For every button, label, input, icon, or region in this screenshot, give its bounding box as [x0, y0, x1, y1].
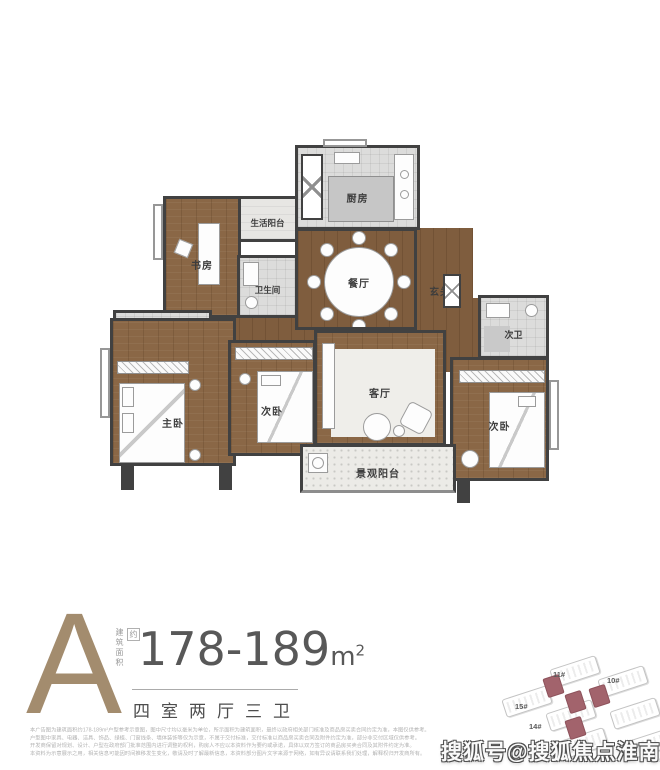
disclaimer-line: 本广告图为建筑面积约178-189m²户型参考示意图，图中尺寸均以毫米为单位，所… [30, 727, 630, 733]
window [153, 204, 163, 260]
area-number: 178-189 [138, 622, 330, 676]
pillow [261, 375, 281, 386]
window [323, 139, 367, 147]
room-bathroom: 卫生间 [237, 255, 298, 318]
window [100, 348, 110, 418]
building-label: 11# [553, 670, 565, 679]
room-dining: 餐厅 [295, 228, 417, 330]
armchair [363, 413, 391, 441]
pillow [122, 387, 134, 407]
room-label: 次卧 [231, 403, 313, 418]
wardrobe [235, 347, 313, 360]
side-table [393, 425, 405, 437]
toilet [245, 296, 258, 309]
watermark: 搜狐号@搜狐焦点淮南店 [441, 736, 660, 766]
wall-stub [121, 466, 134, 490]
room-view-balcony: 景观阳台 [300, 444, 456, 493]
chair [461, 450, 479, 468]
dining-chair [320, 243, 334, 257]
nightstand [239, 373, 251, 385]
area-label: 建筑面积 约 [114, 628, 140, 674]
room-label: 景观阳台 [303, 465, 453, 480]
room-label: 卫生间 [240, 284, 295, 296]
dining-chair [384, 243, 398, 257]
nightstand [189, 449, 201, 461]
room-label: 餐厅 [324, 275, 394, 290]
room-living: 客厅 [314, 330, 446, 446]
kitchen-sink [334, 152, 360, 164]
kitchen-stove [394, 154, 414, 220]
dining-chair [320, 307, 334, 321]
room-master-bedroom: 主卧 [110, 318, 236, 466]
window [549, 380, 559, 450]
nightstand [189, 379, 201, 391]
stove-burner [400, 170, 409, 179]
wardrobe [117, 361, 189, 374]
dining-chair [307, 275, 321, 289]
room-label: 次卧 [453, 418, 546, 433]
room-kitchen: 厨房 [295, 145, 420, 230]
room-label: 书房 [166, 257, 238, 272]
dining-chair [384, 307, 398, 321]
room-label: 厨房 [298, 190, 417, 205]
room-label: 次卫 [481, 328, 546, 341]
shaft-hatch [301, 154, 323, 220]
wardrobe [459, 370, 545, 383]
study-desk [198, 223, 220, 285]
page-canvas: 厨房 生活阳台 书房 卫生间 餐厅 [0, 0, 660, 770]
room-study: 书房 [163, 196, 241, 318]
dining-chair [352, 231, 366, 245]
disclaimer-text: 本广告图为建筑面积约178-189m²户型参考示意图，图中尺寸均以毫米为单位，所… [30, 727, 402, 752]
bath-sink [486, 303, 510, 318]
study-chair [174, 239, 194, 259]
room-label: 生活阳台 [240, 217, 295, 229]
wall-stub [219, 466, 232, 490]
bath-sink [243, 262, 259, 286]
shaft-hatch [443, 274, 461, 308]
area-label-text: 建筑面积 [114, 628, 125, 674]
room-label: 玄关 [407, 284, 473, 298]
dining-chair [352, 319, 366, 330]
room-bedroom-2: 次卧 [228, 340, 316, 456]
room-label: 主卧 [143, 415, 203, 430]
room-foyer: 玄关 [407, 258, 473, 318]
pillow [122, 413, 134, 433]
toilet [525, 304, 538, 317]
info-divider [132, 689, 298, 690]
room-bath-2: 次卫 [478, 295, 549, 359]
building-block [609, 697, 660, 730]
pillow [518, 396, 536, 407]
wall-stub [457, 481, 470, 503]
room-service-balcony: 生活阳台 [237, 196, 298, 242]
area-value: 178-189m2 [138, 622, 365, 676]
unit-layout-text: 四室两厅三卫 [133, 697, 301, 722]
unit-type-letter: A [26, 592, 122, 736]
area-unit: m2 [330, 642, 365, 672]
building-label: 10# [607, 676, 620, 685]
building-label: 15# [515, 702, 528, 711]
room-label: 客厅 [317, 385, 443, 400]
floor-plan: 厨房 生活阳台 书房 卫生间 餐厅 [85, 140, 565, 540]
room-bedroom-3: 次卧 [450, 357, 549, 481]
